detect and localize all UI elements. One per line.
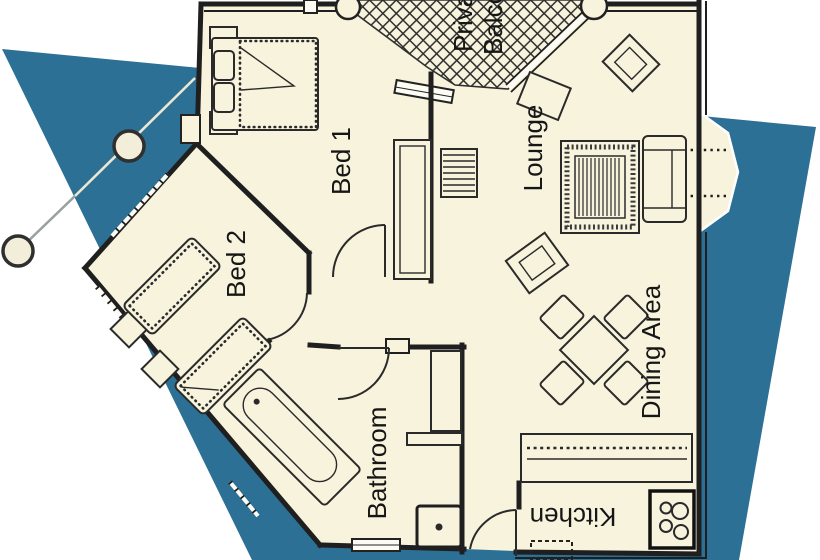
- callout-circle-upper: [114, 131, 144, 161]
- room-label-lounge: Lounge: [518, 105, 548, 192]
- balcony-column-left: [336, 0, 360, 19]
- stove: [650, 491, 694, 548]
- sofa: [643, 136, 686, 222]
- room-label-balcony-line1: Private: [448, 0, 478, 52]
- kitchen-counter: [521, 434, 692, 482]
- window-bottom: [352, 539, 400, 551]
- radiator-shelf: [441, 149, 477, 197]
- window-bed1-left: [181, 115, 200, 143]
- floor-plan-drawing: Bed 1 Bed 2 Bathroom Lounge Dining Area …: [0, 0, 820, 560]
- top-wall-pier: [304, 0, 317, 13]
- room-label-bed1: Bed 1: [326, 127, 356, 195]
- fireplace-rug: [561, 141, 639, 233]
- pillow: [214, 83, 234, 112]
- room-label-kitchen: Kitchen: [530, 502, 617, 532]
- callout-circle-lower: [3, 236, 33, 266]
- pillow: [214, 51, 234, 80]
- room-label-balcony-line2: Balcony: [478, 0, 508, 55]
- wardrobe: [394, 140, 431, 279]
- floor-plan-page: Bed 1 Bed 2 Bathroom Lounge Dining Area …: [0, 0, 820, 560]
- room-label-bathroom: Bathroom: [362, 407, 392, 520]
- room-label-bed2: Bed 2: [221, 230, 251, 298]
- washbasin: [417, 506, 461, 547]
- balcony-column-right: [581, 0, 607, 19]
- room-label-dining: Dining Area: [636, 284, 666, 419]
- double-bed: [212, 38, 318, 130]
